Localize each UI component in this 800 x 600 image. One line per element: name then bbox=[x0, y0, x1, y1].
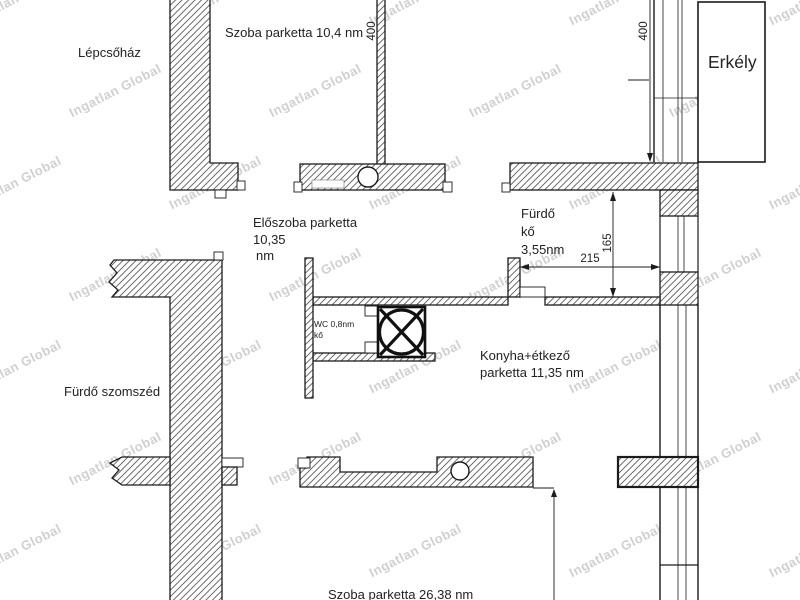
room-label-wc: WC 0,8nm kő bbox=[314, 319, 354, 340]
room-label-kitchen: Konyha+étkező parketta 11,35 nm bbox=[480, 348, 584, 380]
dimension-165: 165 bbox=[602, 192, 616, 297]
wall-tab bbox=[294, 182, 302, 192]
wall-bathroom-right-lower bbox=[660, 272, 698, 305]
wall-tab bbox=[298, 458, 310, 468]
wall-neighbor-tab bbox=[222, 467, 237, 485]
room-label-line: WC 0,8nm bbox=[314, 319, 354, 329]
room-label-room-top: Szoba parketta 10,4 nm bbox=[225, 25, 363, 40]
pipe-column bbox=[451, 462, 469, 480]
wall-pier-bottom-right bbox=[618, 457, 698, 487]
wall-tab bbox=[215, 190, 226, 198]
room-label-line: Konyha+étkező bbox=[480, 348, 570, 363]
room-label-balcony: Erkély bbox=[708, 52, 757, 72]
balcony-outline bbox=[698, 2, 765, 162]
wall-kitchen-top bbox=[545, 297, 660, 305]
wall-neighbor bbox=[109, 260, 222, 600]
leader-line bbox=[533, 488, 557, 600]
wall-bottom-room bbox=[300, 457, 533, 487]
wall-hall-divider bbox=[305, 258, 313, 398]
wall-room-divider-top bbox=[377, 0, 385, 165]
dimension-text: 165 bbox=[602, 233, 614, 252]
room-label-line: kő bbox=[521, 224, 535, 239]
ventilation-shaft bbox=[378, 307, 425, 357]
wall-wc-top bbox=[313, 297, 508, 305]
radiator bbox=[312, 180, 344, 188]
wall-bathroom-top bbox=[510, 163, 698, 190]
window-band-top-right bbox=[654, 0, 698, 162]
floorplan-drawing: 400 400 215 165 Lépcsőház Szoba parketta… bbox=[0, 0, 800, 600]
room-label-bathroom: Fürdő kő 3,55nm bbox=[521, 206, 564, 257]
wall-tab bbox=[237, 181, 245, 190]
dimension-text: 400 bbox=[366, 21, 378, 40]
room-label-room-bottom: Szoba parketta 26,38 nm bbox=[328, 587, 473, 600]
dimension-400-left: 400 bbox=[366, 21, 378, 40]
room-label-neighbor: Fürdő szomszéd bbox=[64, 384, 160, 399]
door-threshold bbox=[520, 287, 545, 297]
wall-tab bbox=[443, 182, 452, 192]
room-label-line: 3,55nm bbox=[521, 242, 564, 257]
room-label-line: 10,35 bbox=[253, 232, 286, 247]
wall-neighbor-arm bbox=[110, 457, 170, 485]
wall-bathroom-right-upper bbox=[660, 190, 698, 216]
window-band-bathroom bbox=[660, 216, 698, 272]
floorplan-canvas: Ingatlan GlobalIngatlan GlobalIngatlan G… bbox=[0, 0, 800, 600]
room-label-line: nm bbox=[256, 248, 274, 263]
pipe-column bbox=[358, 167, 378, 187]
dimension-text: 215 bbox=[580, 253, 599, 265]
wall-bathroom-left-pier bbox=[508, 258, 520, 297]
room-label-line: Előszoba parketta bbox=[253, 215, 358, 230]
dimension-text: 400 bbox=[638, 21, 650, 40]
wall-tab bbox=[214, 252, 223, 260]
room-label-hall: Előszoba parketta 10,35 nm bbox=[253, 215, 358, 263]
room-label-stairwell: Lépcsőház bbox=[78, 45, 141, 60]
room-label-line: Fürdő bbox=[521, 206, 555, 221]
wall-tab bbox=[222, 458, 243, 467]
wall-tab bbox=[502, 183, 510, 192]
room-label-line: parketta 11,35 nm bbox=[480, 365, 584, 380]
window-band-bottom-right bbox=[660, 305, 698, 600]
room-label-line: kő bbox=[314, 330, 323, 340]
dimension-400-right: 400 bbox=[628, 0, 653, 162]
